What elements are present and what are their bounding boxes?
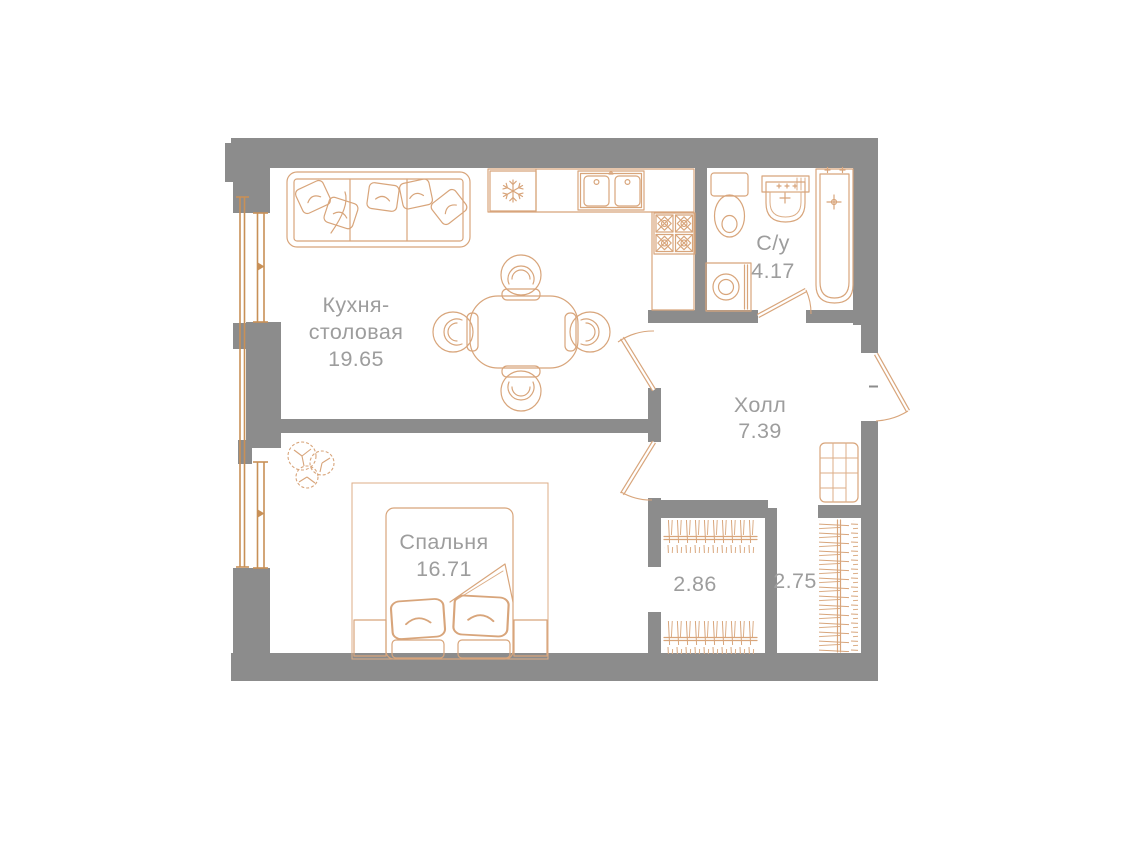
kitchen-name-line2: столовая: [309, 320, 404, 344]
wall-hall-top-left: [648, 310, 758, 323]
hall-name: Холл: [734, 393, 786, 417]
kitchen-area: 19.65: [328, 347, 384, 371]
wall-kitchen-bedroom: [262, 419, 661, 433]
wall-bottom: [231, 653, 878, 681]
wardrobe-right-rack: [819, 520, 858, 652]
wardrobe-right-area: 2.75: [773, 569, 816, 593]
wall-balcony-stub: [225, 143, 233, 182]
hanger-rack-icon: [819, 520, 858, 652]
hall-area: 7.39: [738, 419, 781, 443]
floor-plan-canvas: Кухня- столовая 19.65 Спальня 16.71 Холл…: [0, 0, 1143, 845]
kitchen-name-line1: Кухня-: [322, 293, 389, 317]
wall-left-top: [233, 138, 270, 213]
wall-hall-stub: [648, 388, 661, 442]
bedroom-name: Спальня: [399, 530, 488, 554]
floor-plan: Кухня- столовая 19.65 Спальня 16.71 Холл…: [0, 0, 1143, 845]
wall-wardrobe-right-top: [818, 505, 878, 518]
wall-top: [231, 138, 878, 168]
wall-wardrobe-left-top: [648, 500, 768, 518]
wall-hall-top-right: [806, 310, 861, 323]
bathroom-name: С/у: [756, 231, 789, 255]
bedroom-area: 16.71: [416, 557, 472, 581]
wall-right-upper: [853, 138, 878, 325]
wall-kitchen-bathroom: [695, 168, 707, 313]
wall-right-lower: [861, 421, 878, 658]
wardrobe-left-area: 2.86: [673, 572, 716, 596]
bathroom-area: 4.17: [751, 259, 794, 283]
wall-bedroom-right-lower: [648, 612, 661, 658]
wall-right-middle: [861, 310, 878, 353]
